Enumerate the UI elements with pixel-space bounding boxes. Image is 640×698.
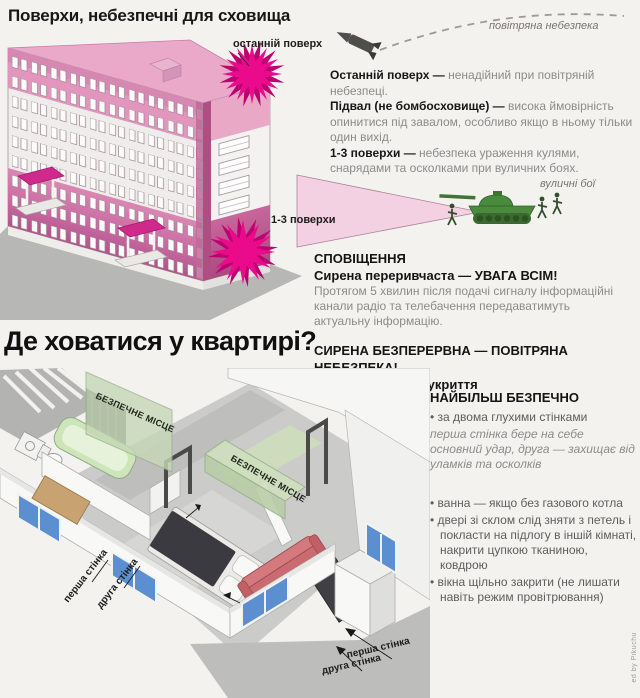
floors-1-3-label: 1-3 поверхи xyxy=(271,214,336,226)
air-danger-illustration xyxy=(316,6,638,64)
soldier-icon xyxy=(538,197,547,218)
street-battle-illustration xyxy=(280,163,610,248)
alert-heading: СПОВІЩЕННЯ xyxy=(314,250,640,267)
section2-title: Де ховатися у квартирі? xyxy=(4,326,316,357)
air-danger-label: повітряна небезпека xyxy=(489,20,598,32)
list-item: • ванна — якщо без газового котла xyxy=(430,496,638,511)
floors-description: Останній поверх — ненадійний при повітря… xyxy=(330,68,638,177)
list-item: • вікна щільно закрити (не лишати навіть… xyxy=(430,575,638,605)
list-item: • двері зі склом слід зняти з петель і п… xyxy=(430,513,638,573)
alert-details: Протягом 5 хвилин після подачі сигналу і… xyxy=(314,284,624,329)
paragraph-last-floor: Останній поверх — ненадійний при повітря… xyxy=(330,68,638,99)
soldier-icon xyxy=(553,193,562,214)
safest-places-list: НАЙБІЛЬШ БЕЗПЕЧНО • за двома глухими сті… xyxy=(430,390,638,607)
list-item: • за двома глухими стінками xyxy=(430,410,638,425)
street-battle-label: вуличні бої xyxy=(540,178,595,190)
list-item-note: перша стінка бере на себе основний удар,… xyxy=(430,427,638,472)
alert-intermittent-siren: Сирена переривчаста — УВАГА ВСІМ! xyxy=(314,267,640,284)
watermark: ed by Pikuchu xyxy=(631,632,638,682)
paragraph-basement: Підвал (не бомбосховище) — висока ймовір… xyxy=(330,99,638,146)
last-floor-label: останній поверх xyxy=(233,38,322,50)
section1-title: Поверхи, небезпечні для сховища xyxy=(8,6,290,26)
missile-icon xyxy=(332,23,381,60)
apartment-building-illustration xyxy=(0,28,312,320)
safest-heading: НАЙБІЛЬШ БЕЗПЕЧНО xyxy=(430,390,638,405)
